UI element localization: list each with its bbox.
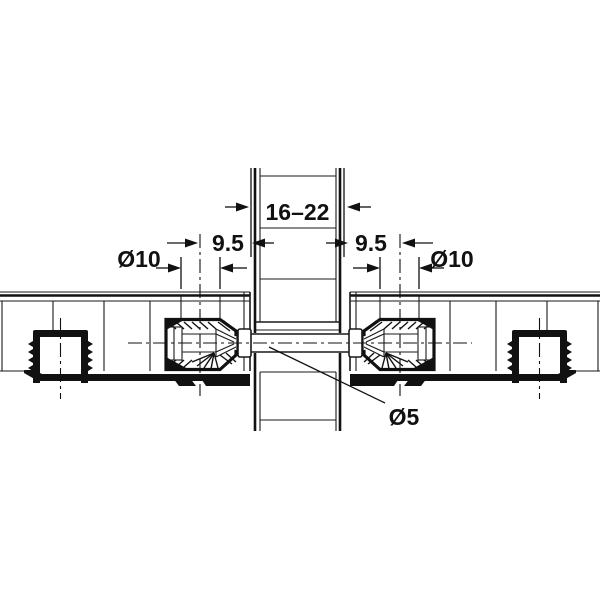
right-sleeve [507,318,572,399]
bolt-label: Ø5 [389,404,420,430]
right-housing [349,234,434,396]
left-housing [166,234,251,396]
offset-right-label: 9.5 [355,230,387,256]
dim-panel-thickness: 16–22 [225,168,371,257]
left-sleeve [28,318,93,399]
offset-left-label: 9.5 [212,230,244,256]
dim-offset-left: 9.5 [167,230,274,256]
connector-section-drawing: 16–22 9.5 9.5 Ø10 Ø10 Ø5 [0,0,600,600]
technical-drawing-canvas: 16–22 9.5 9.5 Ø10 Ø10 Ø5 [0,0,600,600]
dim-offset-right: 9.5 [326,230,433,256]
panel-thickness-label: 16–22 [266,199,330,225]
hole-left-label: Ø10 [117,246,160,272]
hole-right-label: Ø10 [430,246,473,272]
